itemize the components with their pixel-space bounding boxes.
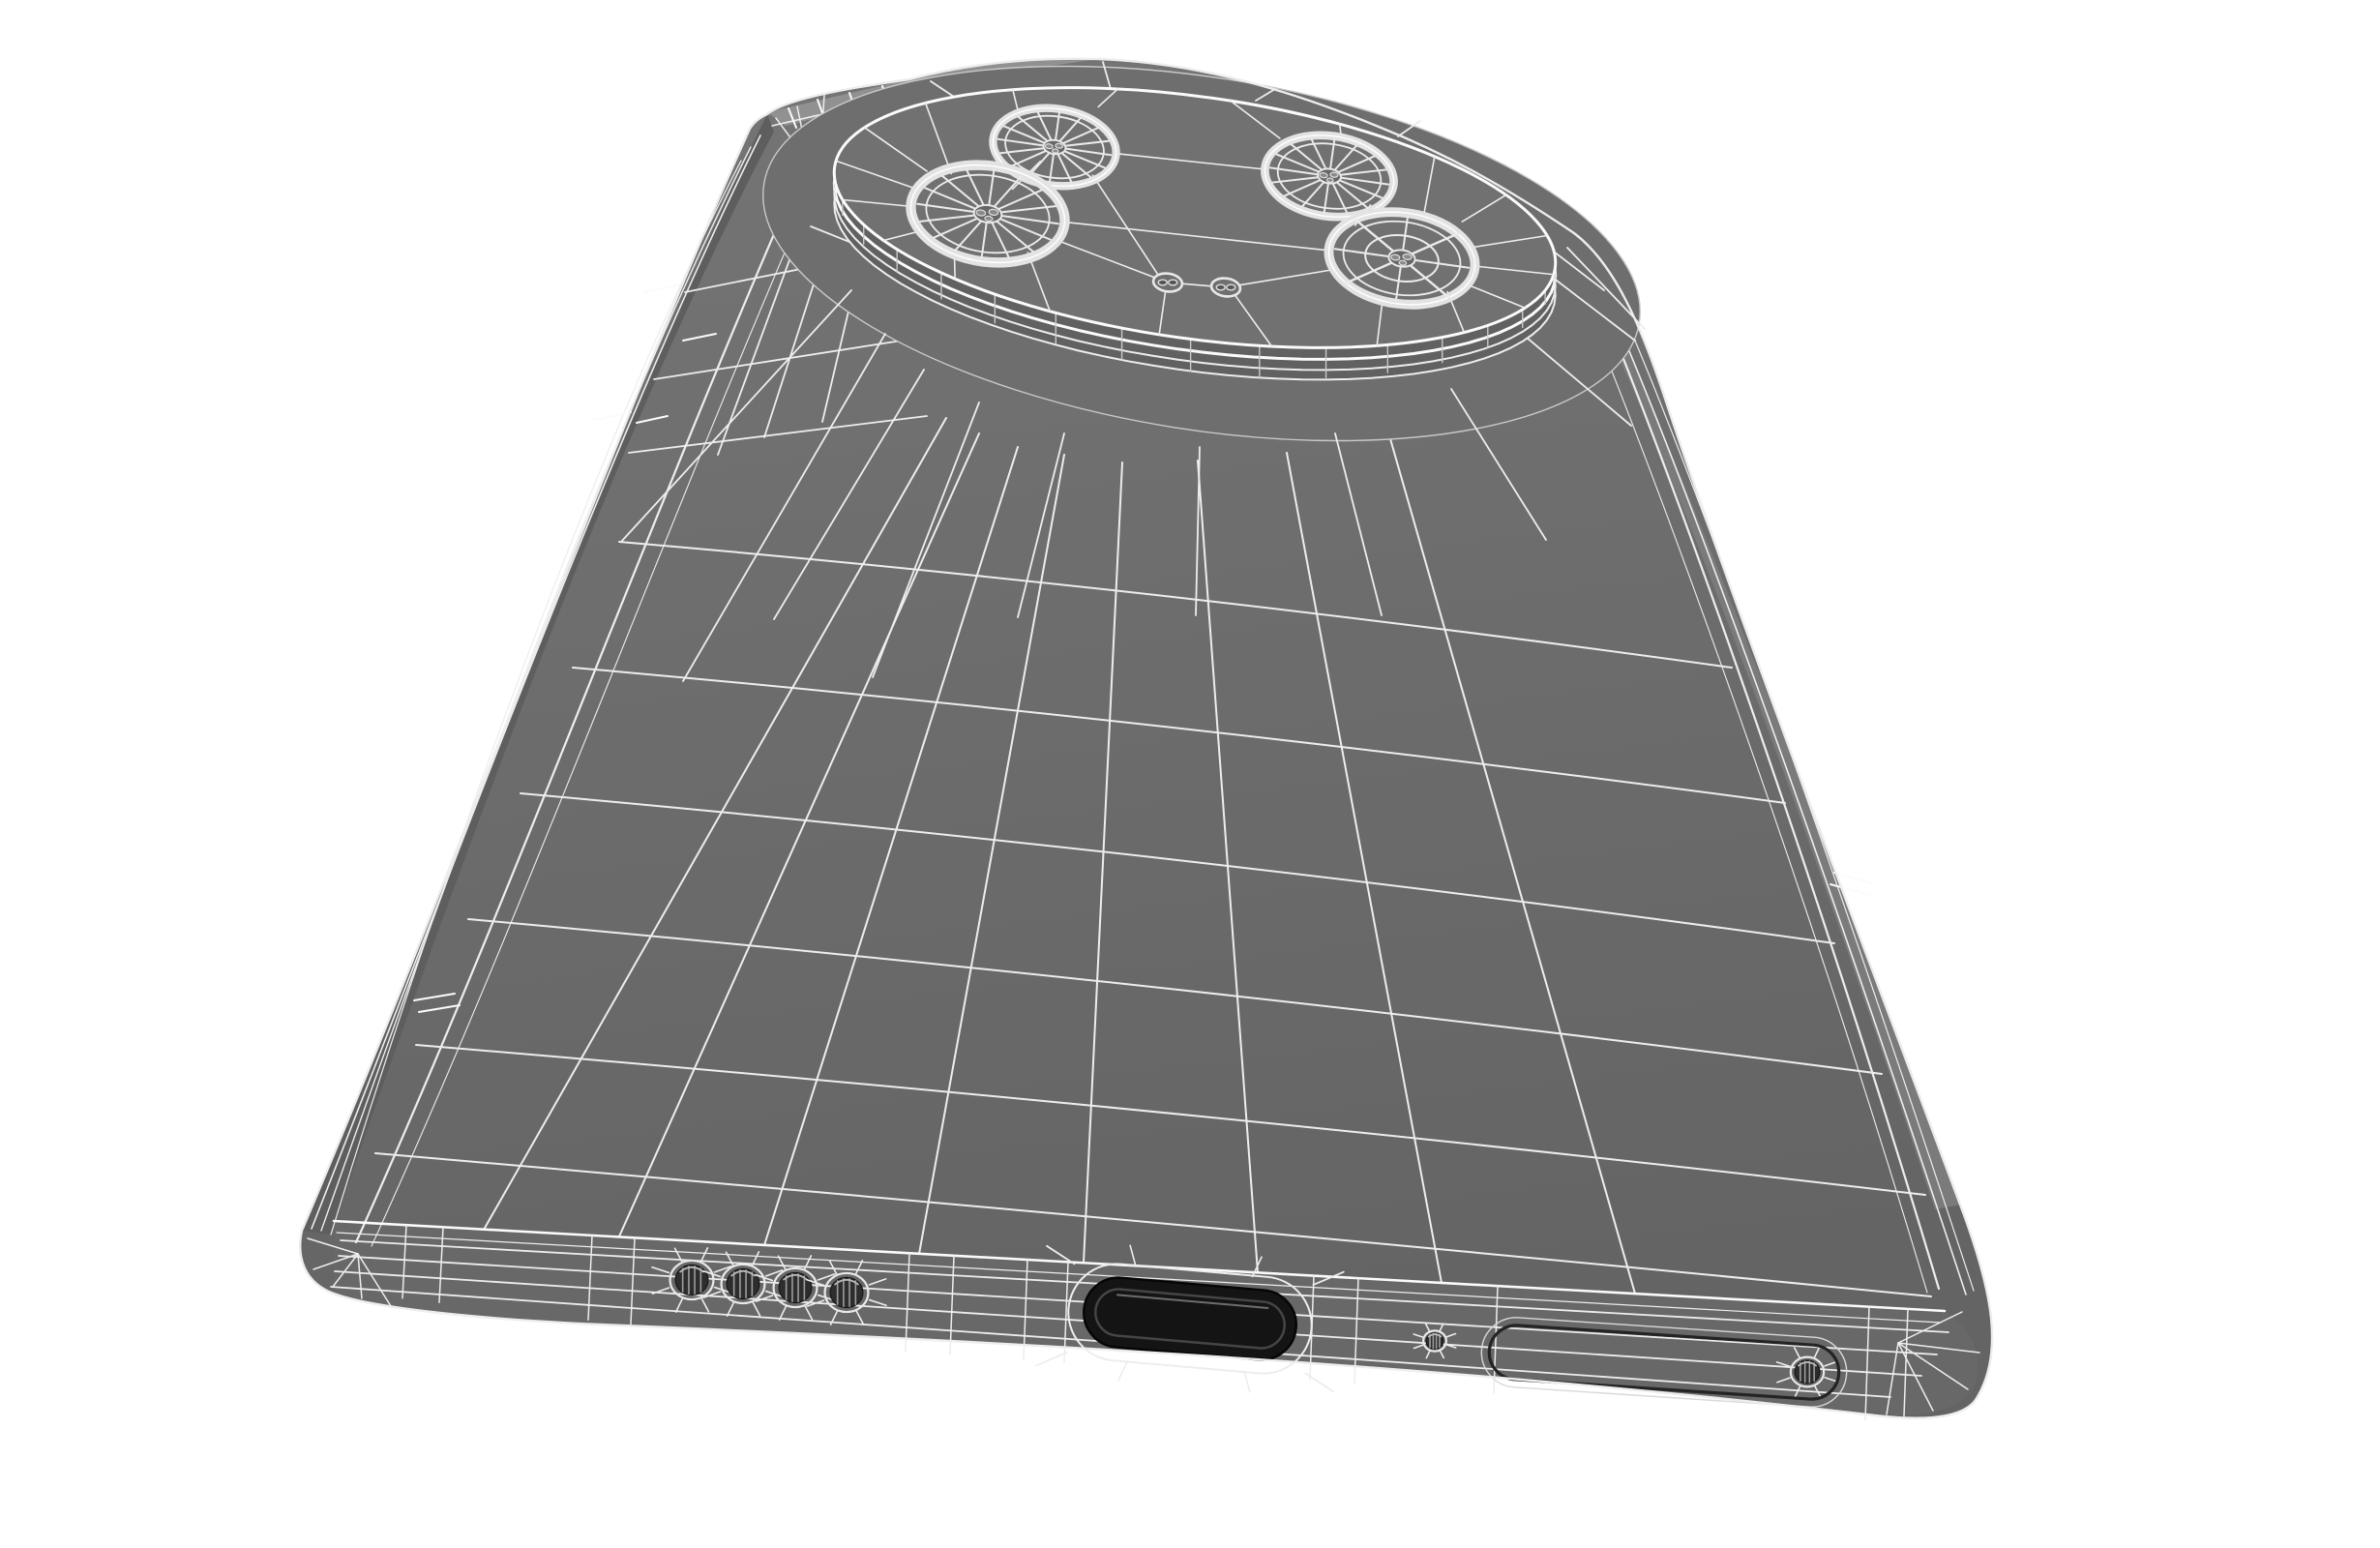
phone-3d-wireframe [0, 0, 2380, 1548]
render-canvas [0, 0, 2380, 1548]
